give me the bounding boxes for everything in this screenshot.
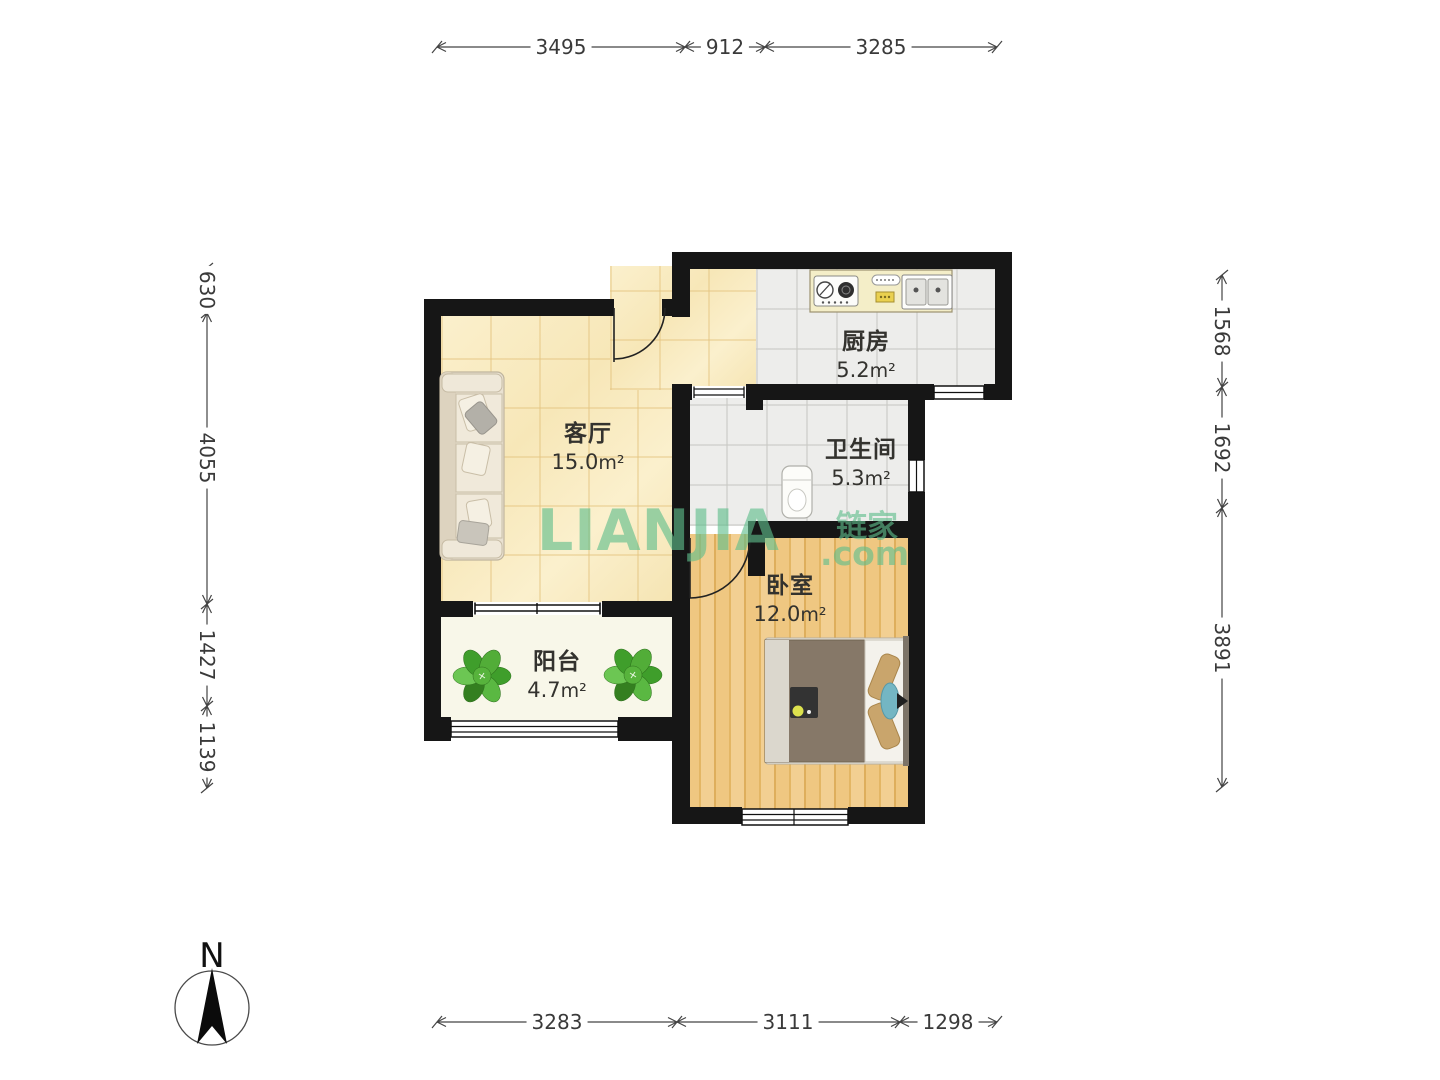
dim-right-2: 1692 [1210,418,1234,479]
bathroom-window [909,460,924,492]
kitchen-counter [810,270,952,312]
sink-icon [902,275,952,309]
room-name: 卫生间 [825,430,897,464]
dim-right-1: 1568 [1210,301,1234,362]
stove-icon [814,276,858,306]
dim-bottom-2: 3111 [758,1010,819,1034]
bed [765,636,909,766]
room-name: 厨房 [836,322,896,356]
floor-plan-canvas: LIANJIA 链家 .com 客厅 15.0m² 厨房 5.2m² 卫生间 5… [0,0,1440,1080]
compass-icon [175,968,249,1045]
watermark-suffix: .com [820,534,909,573]
balcony-label: 阳台 4.7m² [527,642,587,702]
kitchen-label: 厨房 5.2m² [836,322,896,382]
bathroom-label: 卫生间 5.3m² [825,430,897,490]
watermark-brand: LIANJIA [537,498,780,564]
dim-top-1: 3495 [531,35,592,59]
living-room-label: 客厅 15.0m² [552,414,625,474]
dim-left-3: 1427 [195,625,219,686]
dim-bottom-3: 1298 [918,1010,979,1034]
dim-top-3: 3285 [851,35,912,59]
bedroom-label: 卧室 12.0m² [754,566,827,626]
dim-right-3: 3891 [1210,618,1234,679]
plant [604,645,662,704]
kitchen-window [934,386,984,399]
dim-bottom-1: 3283 [527,1010,588,1034]
room-name: 阳台 [527,642,587,676]
dim-left-1: 630 [195,266,219,314]
plant [453,646,511,705]
room-name: 卧室 [754,566,827,600]
dim-top-2: 912 [701,35,749,59]
dim-left-2: 4055 [195,428,219,489]
compass-north-label: N [199,936,224,976]
toilet-icon [782,466,812,518]
room-name: 客厅 [552,414,625,448]
bathroom-doorway [692,386,746,398]
dim-left-4: 1139 [195,717,219,778]
sofa [440,372,504,560]
entrance-door-arc [614,308,665,362]
balcony-window [451,721,618,737]
balcony-sliding-door [473,602,602,615]
bedroom-window [742,809,848,825]
